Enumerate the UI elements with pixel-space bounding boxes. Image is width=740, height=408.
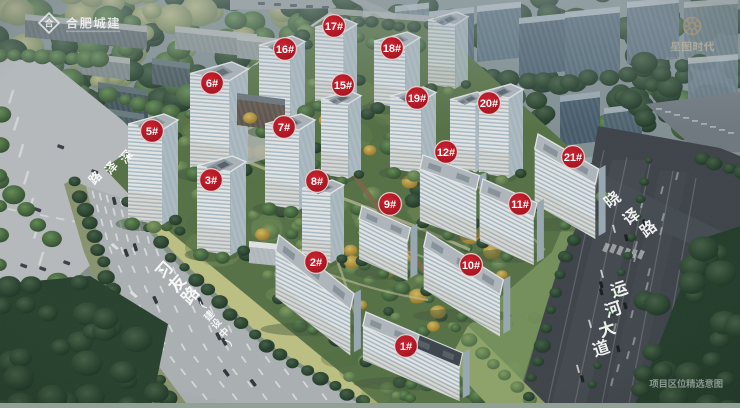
svg-text:9#: 9#	[384, 199, 396, 211]
svg-text:1#: 1#	[400, 341, 412, 353]
svg-text:12#: 12#	[437, 147, 455, 159]
svg-text:7#: 7#	[278, 122, 290, 134]
svg-text:10#: 10#	[462, 260, 480, 272]
svg-text:2#: 2#	[310, 257, 322, 269]
svg-text:19#: 19#	[408, 93, 426, 105]
svg-text:3#: 3#	[205, 175, 217, 187]
svg-text:5#: 5#	[146, 126, 158, 138]
svg-text:11#: 11#	[511, 199, 529, 211]
svg-text:16#: 16#	[276, 44, 294, 56]
svg-text:18#: 18#	[383, 43, 401, 55]
svg-text:15#: 15#	[334, 80, 352, 92]
svg-text:17#: 17#	[325, 21, 343, 33]
svg-text:8#: 8#	[311, 176, 323, 188]
svg-text:6#: 6#	[206, 78, 218, 90]
svg-text:21#: 21#	[564, 152, 582, 164]
svg-text:20#: 20#	[480, 98, 498, 110]
